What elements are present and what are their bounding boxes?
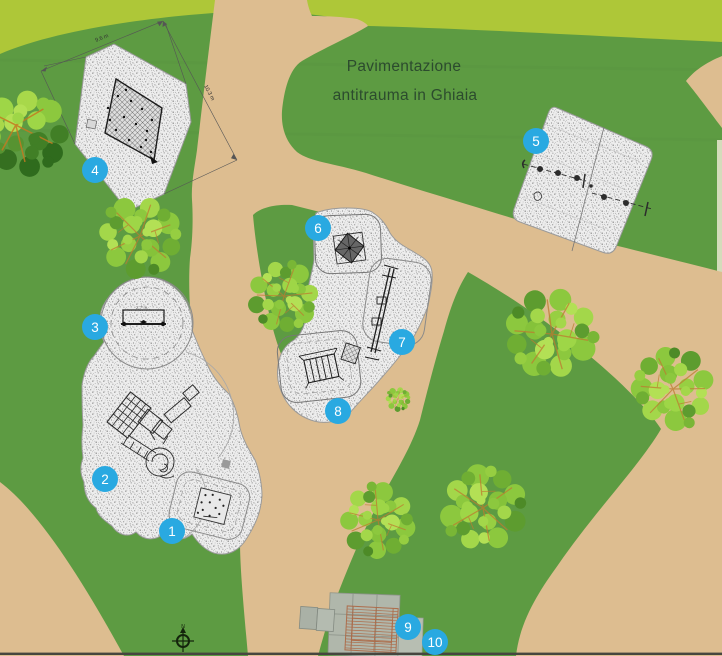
svg-text:antitrauma in Ghiaia: antitrauma in Ghiaia <box>333 87 478 104</box>
svg-text:2: 2 <box>101 472 109 487</box>
svg-text:5: 5 <box>532 134 540 149</box>
svg-text:Pavimentazione: Pavimentazione <box>347 58 462 75</box>
svg-text:N: N <box>181 624 185 630</box>
svg-text:8: 8 <box>334 404 342 419</box>
svg-text:2.7 m: 2.7 m <box>136 305 148 310</box>
svg-text:3: 3 <box>91 320 99 335</box>
svg-text:1: 1 <box>168 524 176 539</box>
svg-text:7: 7 <box>398 335 406 350</box>
svg-text:10: 10 <box>427 635 442 650</box>
svg-text:6: 6 <box>314 221 322 236</box>
svg-text:9: 9 <box>404 620 412 635</box>
svg-text:4: 4 <box>91 163 99 178</box>
